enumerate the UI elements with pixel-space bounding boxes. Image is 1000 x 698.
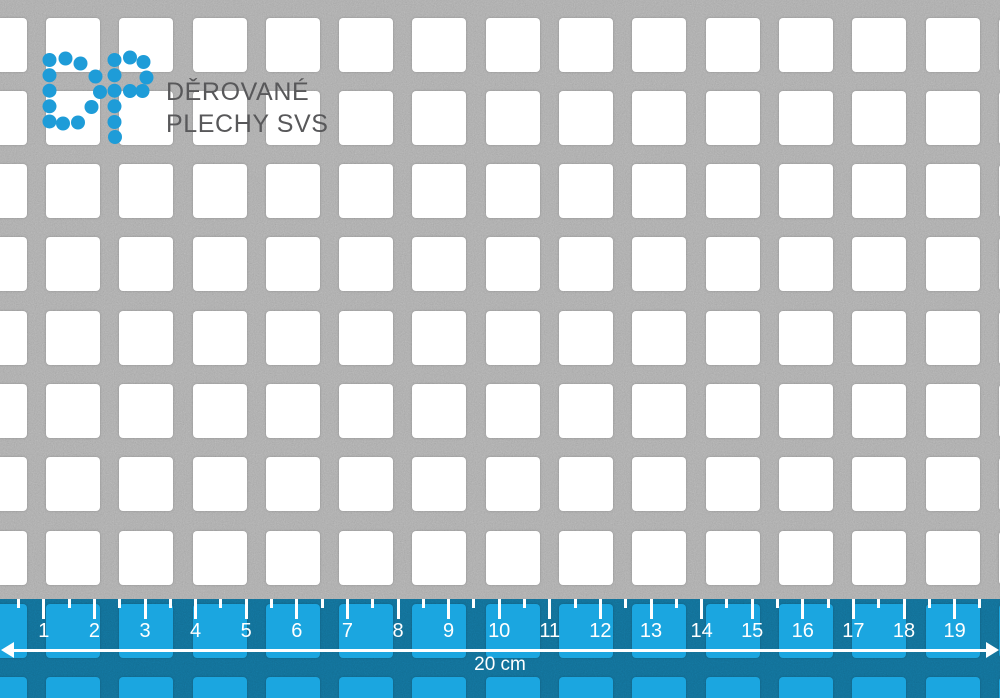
tick-long (346, 599, 349, 619)
logo-dot (140, 71, 154, 85)
hole (852, 531, 906, 585)
hole (0, 457, 27, 511)
tick-long (245, 599, 248, 619)
tick-long (498, 599, 501, 619)
logo-text: DĚROVANÉ PLECHY SVS (166, 77, 329, 140)
hole (632, 384, 686, 438)
hole (559, 91, 613, 145)
logo-dot (108, 68, 122, 82)
tick-short (675, 599, 678, 608)
hole (852, 237, 906, 291)
hole (46, 237, 100, 291)
hole (486, 91, 540, 145)
logo-dot (137, 55, 151, 69)
hole (193, 237, 247, 291)
hole (119, 164, 173, 218)
hole (339, 531, 393, 585)
logo-dot (108, 99, 122, 113)
hole (193, 18, 247, 72)
hole (779, 384, 833, 438)
hole (412, 531, 466, 585)
hole (559, 384, 613, 438)
hole (119, 311, 173, 365)
ruler-number: 13 (640, 621, 662, 641)
hole (632, 311, 686, 365)
hole (412, 164, 466, 218)
arrow-right-icon (986, 642, 999, 658)
hole (486, 18, 540, 72)
hole (559, 237, 613, 291)
tick-short (523, 599, 526, 608)
logo-dot (59, 52, 73, 66)
tick-long (397, 599, 400, 619)
logo-dot (136, 84, 150, 98)
hole (412, 237, 466, 291)
logo-dot (43, 68, 57, 82)
tick-short (928, 599, 931, 608)
hole (926, 311, 980, 365)
dp-monogram-icon (0, 0, 170, 160)
hole (339, 457, 393, 511)
hole (339, 384, 393, 438)
hole (779, 531, 833, 585)
hole (266, 237, 320, 291)
hole (852, 311, 906, 365)
tick-short (725, 599, 728, 608)
tick-long (650, 599, 653, 619)
hole (559, 457, 613, 511)
tick-short (776, 599, 779, 608)
hole (193, 164, 247, 218)
logo-dot (43, 84, 57, 98)
logo-dot (74, 57, 88, 71)
hole (339, 91, 393, 145)
arrow-left-icon (1, 642, 14, 658)
hole (632, 531, 686, 585)
logo-dot (71, 116, 85, 130)
tick-short (17, 599, 20, 608)
hole (852, 384, 906, 438)
hole (266, 311, 320, 365)
hole (46, 384, 100, 438)
hole (559, 164, 613, 218)
hole (706, 18, 760, 72)
hole (632, 18, 686, 72)
hole (779, 457, 833, 511)
ruler-number: 5 (241, 621, 252, 641)
hole (706, 237, 760, 291)
hole (339, 237, 393, 291)
tick-short (827, 599, 830, 608)
tick-short (219, 599, 222, 608)
hole (486, 164, 540, 218)
logo-dot (108, 84, 122, 98)
tick-short (270, 599, 273, 608)
hole (0, 164, 27, 218)
logo-line2: PLECHY SVS (166, 109, 329, 141)
hole (926, 457, 980, 511)
hole (852, 164, 906, 218)
ruler-number: 4 (190, 621, 201, 641)
hole (779, 237, 833, 291)
hole (119, 237, 173, 291)
hole (706, 311, 760, 365)
ruler-number: 1 (38, 621, 49, 641)
hole (779, 91, 833, 145)
ruler-number: 8 (392, 621, 403, 641)
measure-line (12, 649, 988, 652)
hole (706, 164, 760, 218)
hole (632, 457, 686, 511)
hole (193, 457, 247, 511)
perforated-sheet-image: DĚROVANÉ PLECHY SVS 12345678910111213141… (0, 0, 1000, 698)
tick-short (877, 599, 880, 608)
hole (706, 457, 760, 511)
tick-long (700, 599, 703, 619)
logo-dot (56, 117, 70, 131)
tick-long (953, 599, 956, 619)
tick-long (852, 599, 855, 619)
hole (412, 91, 466, 145)
tick-short (68, 599, 71, 608)
logo-line1: DĚROVANÉ (166, 77, 329, 109)
hole (412, 457, 466, 511)
hole (632, 164, 686, 218)
tick-long (903, 599, 906, 619)
hole (266, 164, 320, 218)
hole (0, 311, 27, 365)
logo-dot (43, 53, 57, 67)
hole (412, 311, 466, 365)
hole (119, 384, 173, 438)
logo-dot (93, 85, 107, 99)
hole (559, 531, 613, 585)
tick-long (447, 599, 450, 619)
hole (486, 311, 540, 365)
hole (266, 531, 320, 585)
ruler-number: 12 (589, 621, 611, 641)
hole (193, 384, 247, 438)
tick-short (371, 599, 374, 608)
ruler-number: 6 (291, 621, 302, 641)
hole (46, 164, 100, 218)
ruler-number: 7 (342, 621, 353, 641)
hole (339, 18, 393, 72)
tick-short (574, 599, 577, 608)
ruler-number: 11 (539, 621, 560, 641)
ruler-number: 2 (89, 621, 100, 641)
hole (486, 237, 540, 291)
hole (852, 91, 906, 145)
tick-long (295, 599, 298, 619)
tick-long (599, 599, 602, 619)
hole (632, 91, 686, 145)
tick-short (624, 599, 627, 608)
ruler-number: 9 (443, 621, 454, 641)
hole (486, 457, 540, 511)
tick-long (751, 599, 754, 619)
hole (412, 384, 466, 438)
tick-long (144, 599, 147, 619)
hole (706, 91, 760, 145)
ruler-number: 17 (842, 621, 864, 641)
hole (46, 311, 100, 365)
tick-long (93, 599, 96, 619)
hole (0, 237, 27, 291)
hole (926, 18, 980, 72)
ruler-number: 10 (488, 621, 510, 641)
tick-short (978, 599, 981, 608)
ruler-number: 18 (893, 621, 915, 641)
tick-long (194, 599, 197, 619)
hole (119, 531, 173, 585)
hole (852, 18, 906, 72)
logo-dot (123, 84, 137, 98)
hole (266, 18, 320, 72)
hole (486, 384, 540, 438)
tick-short (321, 599, 324, 608)
hole (779, 18, 833, 72)
logo-dot (89, 70, 103, 84)
tick-long (42, 599, 45, 619)
logo-dot (85, 100, 99, 114)
hole (119, 457, 173, 511)
hole (193, 311, 247, 365)
hole (0, 531, 27, 585)
hole (339, 311, 393, 365)
hole (852, 457, 906, 511)
hole (559, 18, 613, 72)
hole (926, 91, 980, 145)
ruler-number: 3 (139, 621, 150, 641)
tick-short (169, 599, 172, 608)
ruler: 12345678910111213141516171819 20 cm (0, 599, 1000, 698)
ruler-caption: 20 cm (474, 655, 526, 674)
ruler-number: 14 (690, 621, 712, 641)
hole (779, 311, 833, 365)
hole (266, 384, 320, 438)
hole (559, 311, 613, 365)
hole (926, 164, 980, 218)
hole (46, 457, 100, 511)
tick-long (801, 599, 804, 619)
hole (926, 384, 980, 438)
tick-short (472, 599, 475, 608)
logo-dot (108, 115, 122, 129)
ruler-number: 19 (943, 621, 965, 641)
ruler-number: 15 (741, 621, 763, 641)
hole (412, 18, 466, 72)
hole (339, 164, 393, 218)
tick-short (118, 599, 121, 608)
logo-dot (43, 99, 57, 113)
hole (926, 237, 980, 291)
tick-short (422, 599, 425, 608)
logo-dot (108, 130, 122, 144)
logo-dot (108, 53, 122, 67)
hole (46, 531, 100, 585)
ruler-number: 16 (792, 621, 814, 641)
hole (706, 531, 760, 585)
hole (632, 237, 686, 291)
logo-dot (123, 51, 137, 65)
hole (779, 164, 833, 218)
hole (0, 384, 27, 438)
hole (706, 384, 760, 438)
tick-long (548, 599, 551, 619)
hole (266, 457, 320, 511)
logo-dot (43, 115, 57, 129)
hole (193, 531, 247, 585)
hole (926, 531, 980, 585)
hole (486, 531, 540, 585)
